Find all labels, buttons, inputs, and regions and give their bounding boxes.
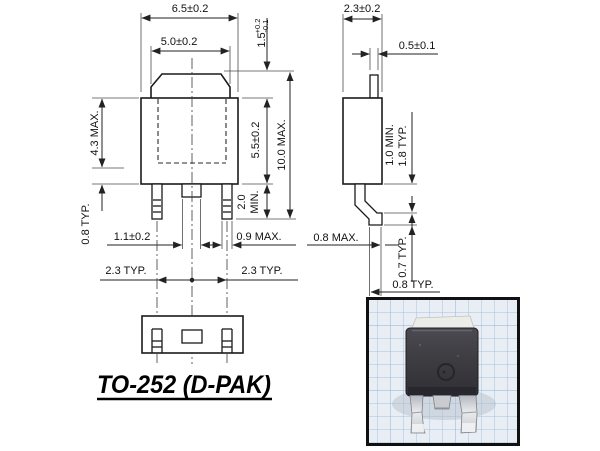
bottom-view xyxy=(142,316,243,353)
title-block: TO-252 (D-PAK) xyxy=(97,371,272,399)
front-lead-center xyxy=(182,184,201,197)
dim-foot-length: 0.8 TYP. xyxy=(392,279,433,291)
front-package-outline xyxy=(141,74,238,219)
dim-lead-pitch-right: 2.3 TYP. xyxy=(241,265,282,277)
front-lead-left xyxy=(152,184,162,219)
page-title: TO-252 (D-PAK) xyxy=(97,371,271,399)
to252-dimension-drawing: 6.5±0.2 5.0±0.2 1.5 +0.2 -0.1 4.3 MAX. 0… xyxy=(0,0,600,451)
dim-tab-width: 5.0±0.2 xyxy=(161,36,198,48)
bottom-center-pad xyxy=(182,330,202,343)
dim-body-top-to-lead: 4.3 MAX. xyxy=(89,110,101,155)
photo-lead-center xyxy=(433,396,451,410)
dim-foot-height: 0.7 TYP. xyxy=(397,236,409,277)
front-body xyxy=(141,98,238,184)
dim-overall-height: 10.0 MAX. xyxy=(276,119,288,170)
dim-tab-height-tol-minus: -0.1 xyxy=(261,20,270,33)
dim-lead-length-value: 2.0 xyxy=(236,194,248,209)
side-view: 2.3±0.2 0.5±0.1 1.0 MIN. 1.8 TYP. 0.8 MA… xyxy=(307,3,440,296)
package-photo xyxy=(366,297,520,446)
dim-tab-thickness: 0.5±0.1 xyxy=(399,40,436,52)
dim-body-thickness: 2.3±0.2 xyxy=(344,3,381,15)
side-tab xyxy=(370,75,378,98)
dim-lead-pitch-left: 2.3 TYP. xyxy=(105,265,146,277)
dim-overall-width: 6.5±0.2 xyxy=(172,3,209,15)
component-body xyxy=(406,328,478,396)
dim-tab-height-value: 1.5 xyxy=(256,32,268,47)
front-view: 6.5±0.2 5.0±0.2 1.5 +0.2 -0.1 4.3 MAX. 0… xyxy=(80,3,298,364)
page: 6.5±0.2 5.0±0.2 1.5 +0.2 -0.1 4.3 MAX. 0… xyxy=(0,0,600,451)
heatsink-tab-glint xyxy=(412,316,474,328)
front-tab-cap xyxy=(151,74,230,98)
dim-body-height: 5.5±0.2 xyxy=(250,122,262,159)
dim-lead-length-qual: MIN. xyxy=(249,190,261,213)
dim-standoff-typ: 1.8 TYP. xyxy=(397,125,409,166)
dim-tab-height: 1.5 +0.2 -0.1 xyxy=(253,19,270,48)
dim-center-lead-width: 1.1±0.2 xyxy=(114,231,151,243)
dim-lead-thickness-front: 0.8 TYP. xyxy=(80,203,92,244)
side-body xyxy=(343,98,382,184)
dim-standoff-min: 1.0 MIN. xyxy=(384,124,396,166)
side-package-outline xyxy=(343,75,382,225)
dim-lead-thickness-side: 0.8 MAX. xyxy=(313,232,358,244)
front-lead-right xyxy=(222,184,232,219)
side-lead xyxy=(355,184,382,225)
dim-outer-lead-width: 0.9 MAX. xyxy=(236,231,281,243)
